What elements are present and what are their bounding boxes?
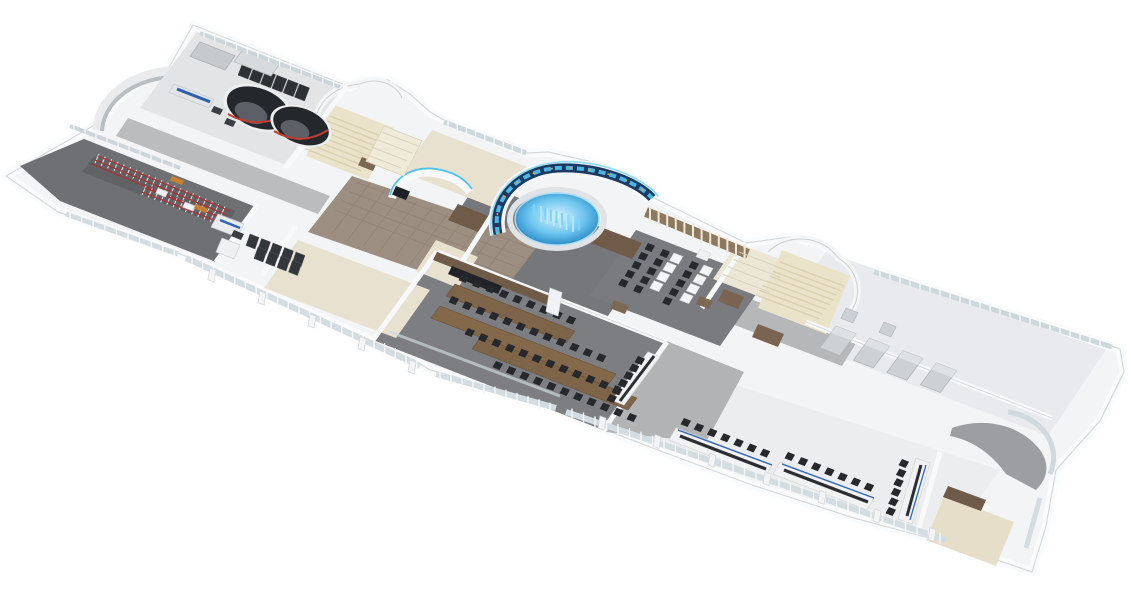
isometric-floorplan-svg: Isometric 3D cutaway floor plan renderin… [0,0,1131,600]
scene-layers [6,25,1124,572]
floorplan-render: Isometric 3D cutaway floor plan renderin… [0,0,1131,600]
